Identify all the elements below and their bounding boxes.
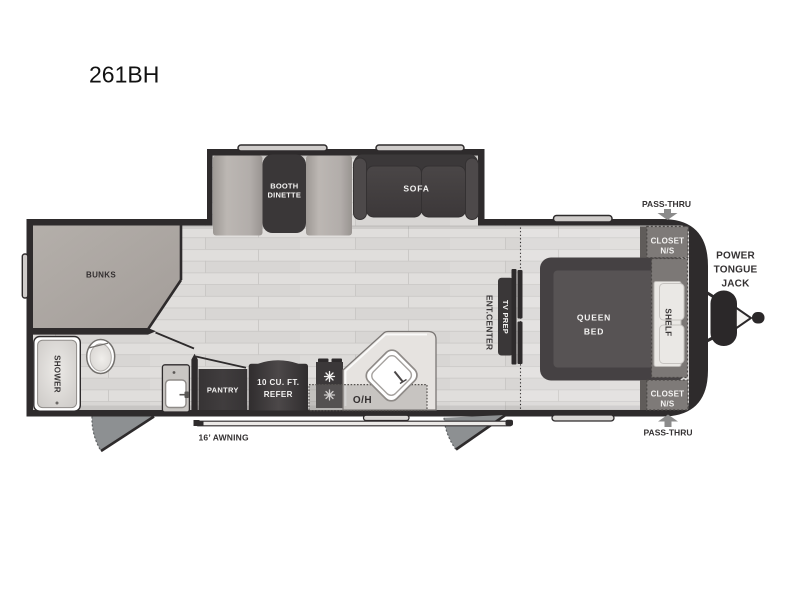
svg-text:SHELF: SHELF <box>664 308 673 336</box>
svg-text:10 CU. FT.: 10 CU. FT. <box>257 378 299 387</box>
svg-text:16’ AWNING: 16’ AWNING <box>199 433 250 443</box>
svg-text:BOOTH: BOOTH <box>270 182 298 191</box>
svg-text:261BH: 261BH <box>89 62 159 88</box>
svg-text:SHOWER: SHOWER <box>52 355 61 393</box>
svg-text:PASS-THRU: PASS-THRU <box>642 199 691 209</box>
svg-text:POWER: POWER <box>716 251 755 262</box>
svg-text:JACK: JACK <box>721 279 750 290</box>
svg-text:DINETTE: DINETTE <box>268 191 301 200</box>
svg-text:N/S: N/S <box>660 400 674 409</box>
svg-text:QUEEN: QUEEN <box>577 313 611 323</box>
svg-text:N/S: N/S <box>660 247 674 256</box>
svg-text:BUNKS: BUNKS <box>86 271 116 280</box>
svg-text:TV PREP: TV PREP <box>501 300 510 334</box>
svg-text:REFER: REFER <box>264 390 293 399</box>
svg-text:O/H: O/H <box>353 395 372 406</box>
svg-text:SOFA: SOFA <box>403 184 429 194</box>
svg-text:PANTRY: PANTRY <box>207 386 239 395</box>
svg-text:CLOSET: CLOSET <box>651 390 685 399</box>
svg-text:BED: BED <box>584 327 604 337</box>
svg-text:PASS-THRU: PASS-THRU <box>644 428 693 438</box>
svg-text:ENT.CENTER: ENT.CENTER <box>485 295 495 350</box>
svg-text:CLOSET: CLOSET <box>651 237 685 246</box>
svg-text:TONGUE: TONGUE <box>714 265 758 276</box>
